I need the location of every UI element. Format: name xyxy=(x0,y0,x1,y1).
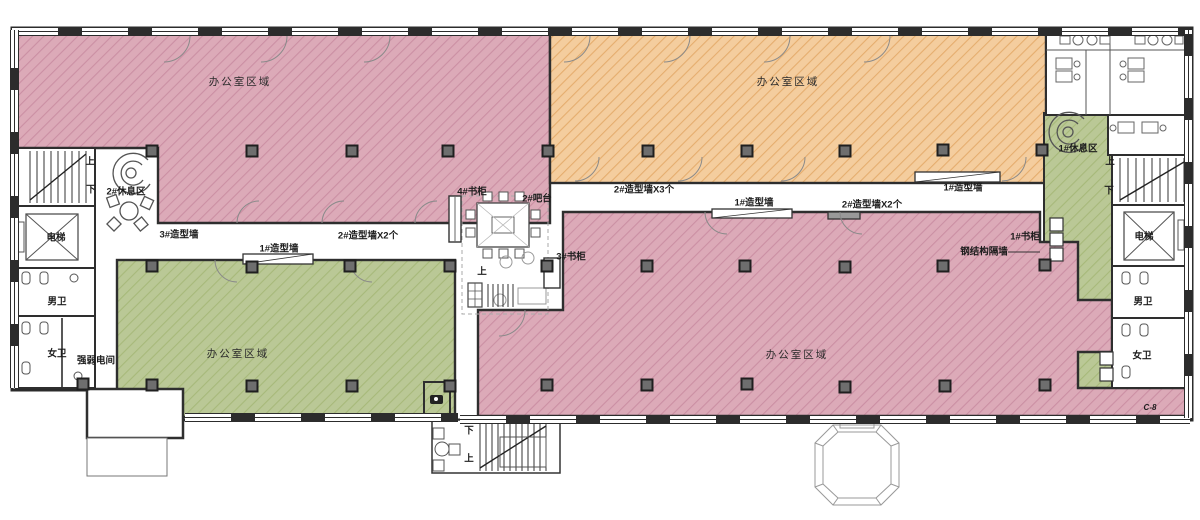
structural-column xyxy=(839,381,852,394)
window-wall-bottom-left xyxy=(185,413,458,422)
label-wall-2x3-label: 2#造型墙X3个 xyxy=(614,185,674,195)
stairwell-left xyxy=(16,148,95,206)
structural-column xyxy=(444,260,457,273)
structural-column xyxy=(146,260,159,273)
structural-column xyxy=(77,378,90,391)
stairwell-right xyxy=(1112,155,1188,205)
structural-column xyxy=(641,379,654,392)
label-stair-down-entrance: 下 xyxy=(464,426,474,436)
label-stair-up-right: 上 xyxy=(1105,157,1115,167)
structural-column xyxy=(246,261,259,274)
label-stair-down-left: 下 xyxy=(86,185,96,195)
structural-column xyxy=(641,260,654,273)
label-zone-se: 办公室区域 xyxy=(766,350,829,361)
label-stair-up-center: 上 xyxy=(477,267,487,277)
label-zone-ne: 办公室区域 xyxy=(757,77,820,88)
structural-column xyxy=(442,145,455,158)
structural-column xyxy=(146,145,159,158)
label-wc-women-left: 女卫 xyxy=(47,349,66,359)
wc-men-right-room xyxy=(1112,266,1188,318)
floor-plan-drawing xyxy=(0,0,1200,520)
structural-column xyxy=(444,380,457,393)
label-rest-area-1: 1#休息区 xyxy=(1058,144,1097,154)
structural-column xyxy=(939,380,952,393)
structural-column xyxy=(1036,144,1049,157)
structural-column xyxy=(344,260,357,273)
label-wall-2x2-left-label: 2#造型墙X2个 xyxy=(338,231,398,241)
label-grid-ref: C-8 xyxy=(1144,404,1157,412)
structural-column xyxy=(937,260,950,273)
label-wc-men-left: 男卫 xyxy=(47,297,66,307)
window-wall-left xyxy=(10,30,19,388)
label-bar-2: 2#吧台 xyxy=(522,194,552,204)
label-elevator-left: 电梯 xyxy=(46,233,65,243)
entrance-stair xyxy=(432,420,560,473)
structural-column xyxy=(937,144,950,157)
structural-column xyxy=(1039,379,1052,392)
structural-column xyxy=(739,260,752,273)
label-wall-1-left-label: 1#造型墙 xyxy=(259,244,298,254)
label-wall-1-right-label: 1#造型墙 xyxy=(943,183,982,193)
label-wall-1-mid-label: 1#造型墙 xyxy=(734,198,773,208)
wc-men-left-room xyxy=(16,268,95,316)
zone-office-ne xyxy=(550,30,1046,183)
label-stair-up-left: 上 xyxy=(85,157,95,167)
label-elec-room: 强弱电间 xyxy=(77,356,115,366)
structural-column xyxy=(839,145,852,158)
structural-column xyxy=(346,380,359,393)
structural-column xyxy=(146,379,159,392)
structural-column xyxy=(246,145,259,158)
label-stair-down-right: 下 xyxy=(1104,186,1114,196)
structural-column xyxy=(541,379,554,392)
label-bookcase-4: 4#书柜 xyxy=(457,187,487,197)
label-steel-partition: 钢结构隔墙 xyxy=(960,247,1008,257)
structural-column xyxy=(741,145,754,158)
structural-column xyxy=(542,145,555,158)
label-rest-area-2: 2#休息区 xyxy=(106,187,145,197)
window-wall-bottom-right xyxy=(460,415,1190,424)
label-bookcase-3: 3#书柜 xyxy=(556,252,586,262)
window-wall-right xyxy=(1184,30,1193,418)
label-wall-2x2-mid-label: 2#造型墙X2个 xyxy=(842,200,902,210)
floor-plan: 办公室区域办公室区域办公室区域办公室区域上下2#休息区电梯3#造型墙1#造型墙2… xyxy=(0,0,1200,520)
label-elevator-right: 电梯 xyxy=(1134,232,1153,242)
label-bookcase-1: 1#书柜 xyxy=(1010,232,1040,242)
label-wall-3-label: 3#造型墙 xyxy=(159,230,198,240)
label-wc-women-right: 女卫 xyxy=(1132,351,1151,361)
structural-column xyxy=(642,145,655,158)
structural-column xyxy=(741,378,754,391)
structural-column xyxy=(246,380,259,393)
window-wall-top xyxy=(12,27,1192,36)
label-zone-sw: 办公室区域 xyxy=(207,349,270,360)
annex-block xyxy=(87,389,183,476)
structural-column xyxy=(1039,259,1052,272)
label-wc-men-right: 男卫 xyxy=(1133,297,1152,307)
label-stair-up-entrance: 上 xyxy=(464,454,474,464)
structural-column xyxy=(346,145,359,158)
canopy-octagon xyxy=(815,420,899,505)
structural-column xyxy=(839,261,852,274)
label-zone-nw: 办公室区域 xyxy=(209,77,272,88)
structural-column xyxy=(541,260,554,273)
